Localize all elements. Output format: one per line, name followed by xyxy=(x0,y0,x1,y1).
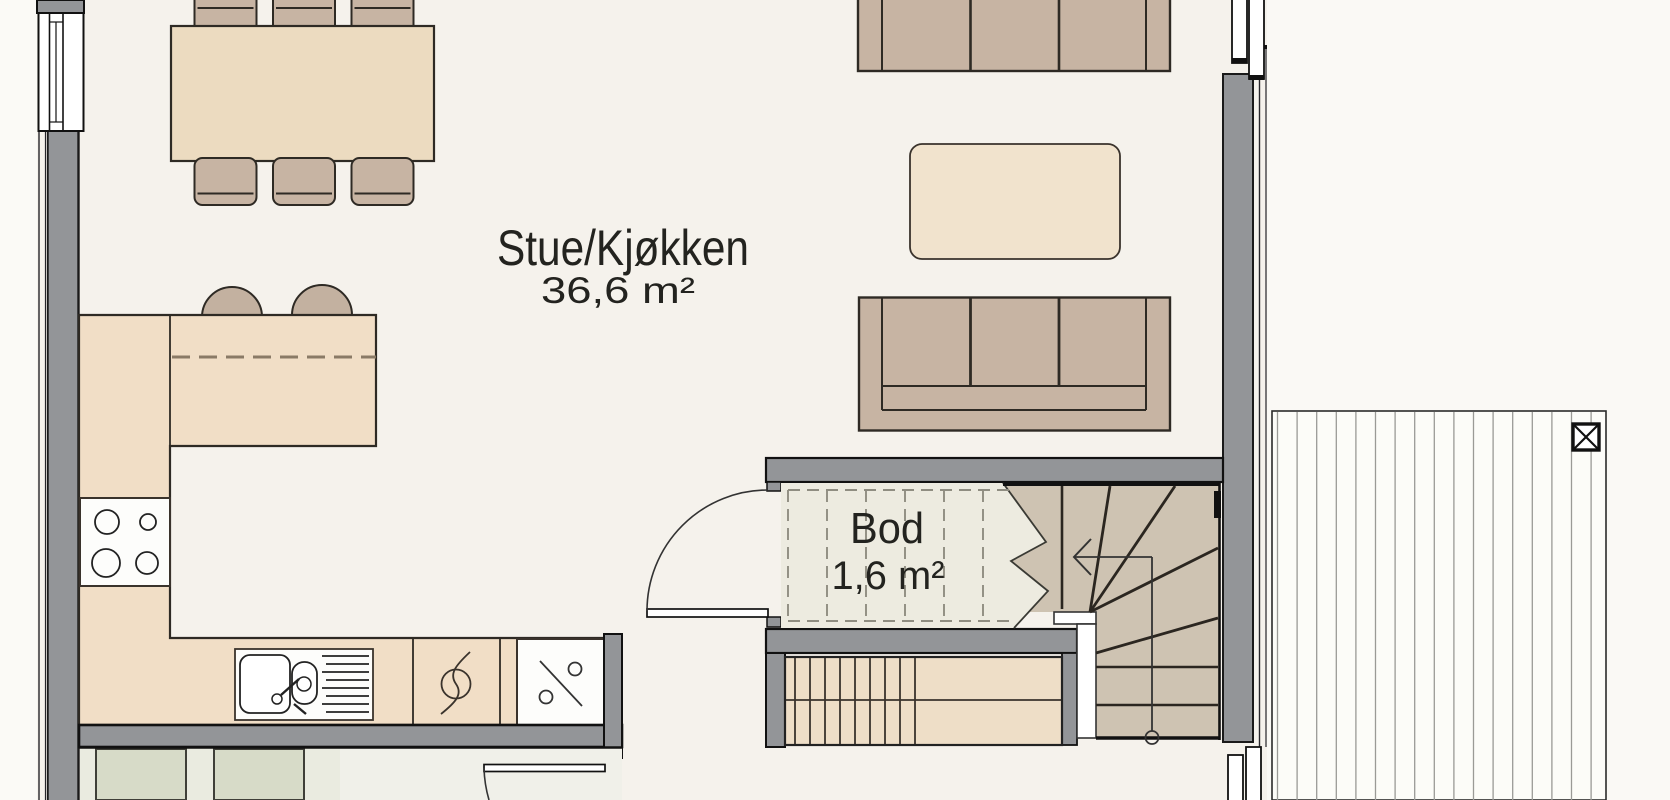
svg-text:Bod: Bod xyxy=(850,504,924,553)
svg-text:36,6 m²: 36,6 m² xyxy=(541,270,695,311)
svg-text:Stue/Kjøkken: Stue/Kjøkken xyxy=(497,220,749,276)
svg-text:1,6 m²: 1,6 m² xyxy=(832,554,945,598)
